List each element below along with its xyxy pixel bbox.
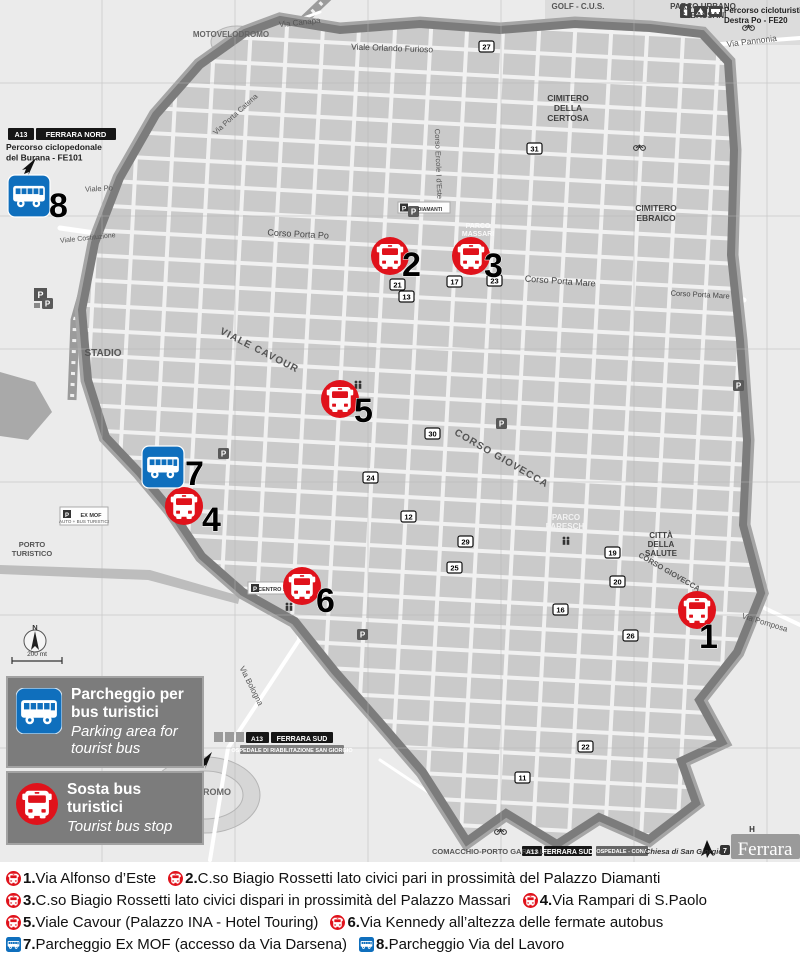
- parking-p-icon: P: [733, 380, 744, 391]
- poi-badge-25: 25: [447, 562, 462, 573]
- poi-badge-29: 29: [458, 536, 473, 547]
- caption-entry-text: Via Rampari di S.Paolo: [552, 892, 707, 909]
- poi-badge-26: 26: [623, 630, 638, 641]
- caption-entry-number: 8.: [376, 936, 389, 953]
- caption-entry-text: Parcheggio Ex MOF (accesso da Via Darsen…: [36, 936, 348, 953]
- legend-item-parking: Parcheggio per bus turistici Parking are…: [6, 676, 204, 768]
- caption-entry-8: 8. Parcheggio Via del Lavoro: [359, 936, 564, 953]
- map-label-comacchio-porto-garibaldi: COMACCHIO-PORTO GARIBALDI /: [432, 847, 557, 856]
- caption-entry-text: Parcheggio Via del Lavoro: [389, 936, 565, 953]
- caption-panel: 1. Via Alfonso d’Este2. C.so Biagio Ross…: [0, 862, 800, 955]
- svg-text:29: 29: [461, 538, 469, 547]
- svg-text:31: 31: [530, 145, 538, 154]
- caption-entry-text: Via Kennedy all’altezza delle fermate au…: [360, 914, 663, 931]
- legend-title-line: turistici: [67, 799, 172, 817]
- caption-line-4: 7. Parcheggio Ex MOF (accesso da Via Dar…: [6, 933, 800, 955]
- svg-text:16: 16: [556, 606, 564, 615]
- poi-badge-30: 30: [425, 428, 440, 439]
- svg-text:21: 21: [393, 281, 401, 290]
- marker-number: 3: [484, 247, 503, 285]
- legend-item-stop: Sosta bus turistici Tourist bus stop: [6, 771, 204, 845]
- poi-badge-20: 20: [610, 576, 625, 587]
- map-label-golf-c-u-s: GOLF - C.U.S.: [552, 2, 605, 11]
- map-label-7: 7: [723, 848, 727, 855]
- map-label-ferrara-nord: FERRARA NORD: [46, 130, 107, 139]
- map-label-a13: A13: [251, 736, 263, 743]
- svg-text:27: 27: [482, 43, 490, 52]
- poi-badge-22: 22: [578, 741, 593, 752]
- caption-entry-number: 4.: [540, 892, 553, 909]
- marker-number: 1: [699, 618, 718, 656]
- svg-text:P: P: [360, 631, 366, 640]
- marker-number: 7: [185, 455, 204, 493]
- caption-entry-number: 6.: [347, 914, 360, 931]
- svg-text:30: 30: [428, 430, 436, 439]
- bus-stop-icon: [168, 871, 183, 886]
- caption-entry-text: C.so Biagio Rossetti lato civici dispari…: [36, 892, 511, 909]
- map-label-parco: PARCOMASSARI: [462, 223, 494, 238]
- caption-entry-number: 1.: [23, 870, 36, 887]
- caption-entry-7: 7. Parcheggio Ex MOF (accesso da Via Dar…: [6, 936, 347, 953]
- svg-text:17: 17: [450, 278, 458, 287]
- svg-text:P: P: [221, 450, 227, 459]
- map-label-ferrara-sud: FERRARA SUD: [277, 736, 328, 743]
- map-label-stadio: STADIO: [84, 348, 121, 359]
- map-label-ospedale-di-riabilitazione-san-giorgio: OSPEDALE DI RIABILITAZIONE SAN GIORGIO: [231, 748, 353, 754]
- svg-text:P: P: [402, 206, 407, 213]
- map-label-diamanti: DIAMANTI: [418, 207, 443, 213]
- map-label-200-mt: 200 mt: [27, 651, 47, 658]
- poi-badge-19: 19: [605, 547, 620, 558]
- parking-bus-icon: [6, 937, 21, 952]
- bus-stop-icon: [6, 893, 21, 908]
- svg-text:P: P: [411, 208, 417, 217]
- legend-subtitle-line: Parking area for: [71, 723, 184, 741]
- map-label-citt: CITTÀDELLASALUTE: [645, 531, 678, 558]
- poi-badge-13: 13: [399, 291, 414, 302]
- map-label-viale-po: Viale Po: [85, 183, 113, 193]
- legend-title-line: Parcheggio per: [71, 686, 184, 704]
- svg-text:22: 22: [581, 743, 589, 752]
- caption-entry-number: 5.: [23, 914, 36, 931]
- parking-bus-icon: [359, 937, 374, 952]
- parking-p-icon: P: [496, 418, 507, 429]
- caption-entry-number: 3.: [23, 892, 36, 909]
- legend-subtitle-line: tourist bus: [71, 740, 184, 758]
- poi-badge-12: 12: [401, 511, 416, 522]
- marker-number: 4: [202, 501, 221, 539]
- svg-text:25: 25: [450, 564, 458, 573]
- marker-number: 8: [49, 187, 68, 225]
- map-label-motovelodromo: MOTOVELODROMO: [193, 30, 269, 39]
- svg-text:19: 19: [608, 549, 616, 558]
- marker-number: 6: [316, 582, 335, 620]
- parking-p-icon: P: [218, 448, 229, 459]
- map-label-n: N: [32, 623, 37, 632]
- marker-number: 2: [402, 246, 421, 284]
- caption-entry-number: 7.: [23, 936, 36, 953]
- caption-entry-3: 3. C.so Biagio Rossetti lato civici disp…: [6, 892, 511, 909]
- poi-badge-17: 17: [447, 276, 462, 287]
- map-label-ferrara: Ferrara: [738, 839, 793, 860]
- svg-text:26: 26: [626, 632, 634, 641]
- parking-p-icon: P: [357, 629, 368, 640]
- legend-panel: Parcheggio per bus turistici Parking are…: [6, 676, 204, 848]
- caption-line-1: 1. Via Alfonso d’Este2. C.so Biagio Ross…: [6, 867, 800, 889]
- poi-badge-16: 16: [553, 604, 568, 615]
- bus-stop-icon: [16, 783, 58, 825]
- map-label-chiesa-di-san-giorgio: Chiesa di San Giorgio: [645, 847, 723, 856]
- map-label-a13: A13: [526, 849, 538, 856]
- bus-stop-icon: [330, 915, 345, 930]
- caption-entry-1: 1. Via Alfonso d’Este: [6, 870, 156, 887]
- parking-p-icon: P: [42, 298, 53, 309]
- caption-entry-text: C.so Biagio Rossetti lato civici pari in…: [198, 870, 661, 887]
- svg-text:20: 20: [613, 578, 621, 587]
- legend-subtitle-line: Tourist bus stop: [67, 818, 172, 836]
- svg-text:13: 13: [402, 293, 410, 302]
- ferrara-tourist-bus-map: P P 27211713233130241229251122: [0, 0, 800, 955]
- svg-text:12: 12: [404, 513, 412, 522]
- svg-text:24: 24: [366, 474, 375, 483]
- map-label-a13: A13: [15, 132, 28, 139]
- legend-title-line: bus turistici: [71, 704, 184, 722]
- map-label-ferrara-sud: FERRARA SUD: [543, 849, 594, 856]
- marker-number: 5: [354, 392, 373, 430]
- map-label-ospedale-cona: OSPEDALE - CONA: [596, 849, 647, 855]
- map-label-h: H: [749, 825, 755, 834]
- compass-rose: [24, 630, 46, 652]
- map-label-auto-bus-turistici: AUTO + BUS TURISTICI: [59, 519, 109, 524]
- svg-text:P: P: [45, 300, 51, 309]
- bus-stop-icon: [523, 893, 538, 908]
- caption-entry-6: 6.Via Kennedy all’altezza delle fermate …: [330, 914, 663, 931]
- caption-entry-text: Viale Cavour (Palazzo INA - Hotel Tourin…: [36, 914, 319, 931]
- map-label-p: P: [253, 587, 257, 593]
- caption-line-2: 3. C.so Biagio Rossetti lato civici disp…: [6, 889, 800, 911]
- map-label-cimitero: CIMITEROEBRAICO: [635, 203, 677, 223]
- caption-entry-2: 2. C.so Biagio Rossetti lato civici pari…: [168, 870, 660, 887]
- caption-line-3: 5.Viale Cavour (Palazzo INA - Hotel Tour…: [6, 911, 800, 933]
- caption-entry-4: 4.Via Rampari di S.Paolo: [523, 892, 707, 909]
- svg-text:P: P: [499, 420, 505, 429]
- svg-text:P: P: [736, 382, 742, 391]
- caption-entry-text: Via Alfonso d’Este: [36, 870, 157, 887]
- caption-entry-5: 5.Viale Cavour (Palazzo INA - Hotel Tour…: [6, 914, 318, 931]
- bus-stop-icon: [6, 871, 21, 886]
- poi-badge-24: 24: [363, 472, 378, 483]
- caption-entry-number: 2.: [185, 870, 198, 887]
- svg-text:11: 11: [519, 774, 527, 783]
- poi-badge-31: 31: [527, 143, 542, 154]
- poi-badge-11: 11: [515, 772, 530, 783]
- poi-badge-27: 27: [479, 41, 494, 52]
- legend-title-line: Sosta bus: [67, 781, 172, 799]
- bus-stop-icon: [6, 915, 21, 930]
- parking-bus-icon: [16, 688, 62, 734]
